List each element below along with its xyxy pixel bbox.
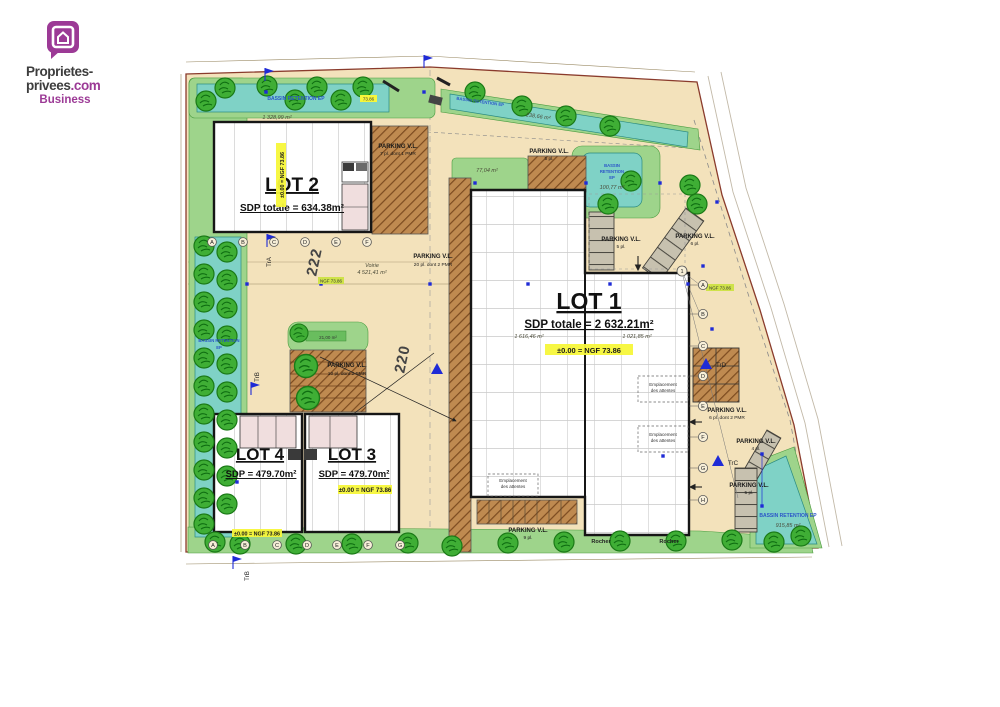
svg-text:B: B [243, 543, 247, 549]
tree-icon [331, 90, 351, 110]
brand-logo: Proprietes- privees.com Business [26, 20, 146, 106]
lot3-level: ±0.00 = NGF 73.86 [338, 485, 392, 494]
tree-icon [194, 320, 214, 340]
tree-icon [194, 404, 214, 424]
parking-lot2-count: 7 pl. dont 1 PMR [380, 151, 416, 157]
tree-icon [194, 264, 214, 284]
parking-right1-label: PARKING V.L. [675, 234, 715, 240]
basin-bottomright-area: 915,85 m² [776, 523, 801, 529]
svg-text:F: F [365, 240, 369, 246]
attente-3-line2: des attentes [501, 484, 526, 489]
tree-icon [196, 91, 216, 111]
lot1-level: ±0.00 = NGF 73.86 [545, 344, 633, 355]
svg-text:73.86: 73.86 [363, 97, 375, 102]
lot2-level: ±0.00 = NGF 73.86 [276, 143, 286, 207]
flag-icon [424, 55, 433, 68]
tree-icon [556, 106, 576, 126]
parking-right1-count: 6 pl. [690, 241, 699, 247]
brand-business: Business [26, 94, 104, 106]
parking-lot1top-label: PARKING V.L. [601, 237, 641, 243]
tree-icon [307, 77, 327, 97]
svg-text:G: G [398, 543, 402, 549]
svg-text:1: 1 [680, 269, 683, 275]
svg-text:E: E [335, 543, 339, 549]
tree-icon [194, 432, 214, 452]
tree-icon [442, 536, 462, 556]
brand-line1: Proprietes- [26, 64, 93, 79]
parking-strip-label: PARKING V.L. [413, 254, 453, 260]
tree-icon [217, 438, 237, 458]
svg-text:E: E [334, 240, 338, 246]
svg-text:G: G [701, 466, 705, 472]
svg-text:±0.00 = NGF 73.86: ±0.00 = NGF 73.86 [280, 152, 286, 198]
svg-text:F: F [366, 543, 370, 549]
attente-2-line1: Emplacement [649, 432, 677, 437]
parking-top-label: PARKING V.L. [529, 149, 569, 155]
ramp-hatch [528, 156, 586, 192]
rocher-label-1: Rocher [591, 539, 611, 545]
tree-icon [554, 532, 574, 552]
tree-icon [498, 533, 518, 553]
svg-text:B: B [241, 240, 245, 246]
lot1-title: LOT 1 [556, 288, 621, 314]
svg-text:E: E [701, 404, 705, 410]
lot1-area-left: 1 616,46 m² [514, 334, 544, 340]
tree-icon [217, 298, 237, 318]
stalls-right-bottom2 [735, 468, 757, 532]
tree-icon [297, 387, 320, 410]
parking-right2-count: 6 pl. dont 2 PMR [709, 415, 745, 421]
rocher-label-2: Rocher [659, 539, 679, 545]
svg-text:A: A [210, 240, 214, 246]
parking-lot2-label: PARKING V.L. [378, 144, 418, 150]
tree-icon [610, 531, 630, 551]
tree-icon [194, 514, 214, 534]
tree-icon [600, 116, 620, 136]
brand-logo-icon [46, 20, 80, 60]
lot1-area-right: 1 021,85 m² [622, 334, 652, 340]
svg-text:NGF 73.86: NGF 73.86 [709, 286, 732, 291]
svg-text:C: C [275, 543, 279, 549]
lot2-rooms [342, 162, 368, 230]
tree-icon [217, 326, 237, 346]
tree-icon [217, 410, 237, 430]
tree-icon [194, 488, 214, 508]
basin-bottomright-name: BASSIN RETENTION EP [759, 513, 817, 519]
lot1-sdp: SDP totale = 2 632.21m² [524, 319, 653, 331]
basin-mid-name1: BASSIN [604, 163, 620, 168]
marker-trc: TrC [728, 460, 739, 467]
marker-trb-left: TrB [254, 372, 261, 382]
road-name: Voirie [365, 263, 379, 269]
tree-icon [295, 355, 318, 378]
parking-island-area: 21,00 m² [319, 335, 337, 340]
tree-icon [194, 348, 214, 368]
svg-text:B: B [701, 312, 705, 318]
parking-right3-label: PARKING V.L. [736, 439, 776, 445]
tree-icon [215, 78, 235, 98]
lot2-sdp: SDP totale = 634.38m² [240, 203, 345, 214]
basin-top-area: 1 328,99 m² [262, 115, 292, 121]
attente-1-line1: Emplacement [649, 382, 677, 387]
lot3-title: LOT 3 [328, 445, 376, 464]
marker-trb-bottom: TrB [244, 571, 251, 581]
lot3-sdp: SDP = 479.70m² [319, 469, 390, 480]
attente-1-line2: des attentes [651, 388, 676, 393]
tree-icon [217, 354, 237, 374]
tree-icon [353, 77, 373, 97]
marker-tra: TrA [266, 256, 273, 267]
svg-text:A: A [701, 283, 705, 289]
svg-text:D: D [303, 240, 307, 246]
svg-text:NGF 73.86: NGF 73.86 [320, 279, 343, 284]
tree-icon [217, 494, 237, 514]
parking-strip-count: 20 pl. dont 2 PMR [414, 262, 453, 268]
tree-icon [722, 530, 742, 550]
svg-text:±0.00 = NGF 73.86: ±0.00 = NGF 73.86 [557, 346, 621, 355]
tree-icon [791, 526, 811, 546]
parking-bottom-label: PARKING V.L. [508, 528, 548, 534]
tree-icon [598, 194, 618, 214]
tree-icon [194, 376, 214, 396]
tree-icon [764, 532, 784, 552]
lot4-sdp: SDP = 479.70m² [226, 469, 297, 480]
ngf-chip-road: NGF 73.86 [318, 277, 344, 284]
parking-right4-count: 5 pl. [744, 490, 753, 496]
tree-icon [290, 324, 308, 342]
svg-text:TrA: TrA [266, 256, 273, 267]
svg-text:TrB: TrB [254, 372, 261, 382]
svg-text:F: F [701, 435, 705, 441]
parking-hatch-strip [449, 178, 471, 552]
grid-marker-one: 1 [677, 266, 687, 276]
parking-island-label: PARKING V.L. [327, 363, 367, 369]
svg-text:C: C [701, 344, 705, 350]
tree-icon [217, 270, 237, 290]
flag-icon [233, 556, 242, 569]
brand-line2: privees [26, 78, 70, 93]
ngf-chip-right: NGF 73.86 [706, 284, 734, 291]
svg-text:±0.00 = NGF 73.86: ±0.00 = NGF 73.86 [234, 532, 280, 538]
marker-trd: TrD [716, 362, 727, 369]
svg-text:A: A [211, 543, 215, 549]
parking-right3-count: 4 pl. [751, 446, 760, 452]
svg-text:D: D [701, 374, 705, 380]
lot2-title: LOT 2 [265, 175, 319, 196]
tree-icon [217, 382, 237, 402]
brand-name: Proprietes- privees.com [26, 65, 146, 93]
green-area-lot1: 77,04 m² [476, 168, 498, 174]
basin-mid-area: 100,77 m² [600, 185, 625, 191]
parking-right4-label: PARKING V.L. [729, 483, 769, 489]
svg-text:±0.00 = NGF 73.86: ±0.00 = NGF 73.86 [339, 487, 392, 494]
parking-bottom-count: 9 pl. [523, 535, 532, 541]
tree-icon [680, 175, 700, 195]
svg-text:D: D [305, 543, 309, 549]
lot4-level: ±0.00 = NGF 73.86 [232, 529, 282, 538]
basin-left-name2: EP [216, 345, 222, 350]
parking-lot1top-count: 5 pl. [616, 244, 625, 250]
tree-icon [194, 292, 214, 312]
svg-text:C: C [272, 240, 276, 246]
tree-icon [342, 534, 362, 554]
tree-icon [687, 194, 707, 214]
parking-hatch-lot2 [372, 126, 428, 234]
lot4-title: LOT 4 [236, 445, 285, 464]
brand-com: .com [70, 78, 100, 93]
parking-top-count: 5 pl. [544, 156, 553, 162]
basin-top-level: 73.86 [360, 95, 377, 102]
attente-2-line2: des attentes [651, 438, 676, 443]
site-plan: LOT 2 SDP totale = 634.38m² LOT 1 SDP to… [0, 0, 1000, 707]
basin-top-name: BASSIN RETENTION EP [267, 96, 325, 102]
basin-left-name1: BASSIN RETENTION [198, 338, 239, 343]
parking-right2-label: PARKING V.L. [707, 408, 747, 414]
attente-3-line1: Emplacement [499, 478, 527, 483]
parking-hatch-bottom [477, 500, 577, 524]
basin-mid-name2: RETENTION [600, 169, 624, 174]
tree-icon [194, 460, 214, 480]
svg-text:H: H [701, 498, 705, 504]
svg-text:TrB: TrB [244, 571, 251, 581]
road-area: 4 521,41 m² [357, 270, 387, 276]
tree-icon [217, 242, 237, 262]
basin-mid-name3: EP [609, 175, 615, 180]
parking-island-count: 10 pl. dont 2 PMR [328, 371, 367, 377]
